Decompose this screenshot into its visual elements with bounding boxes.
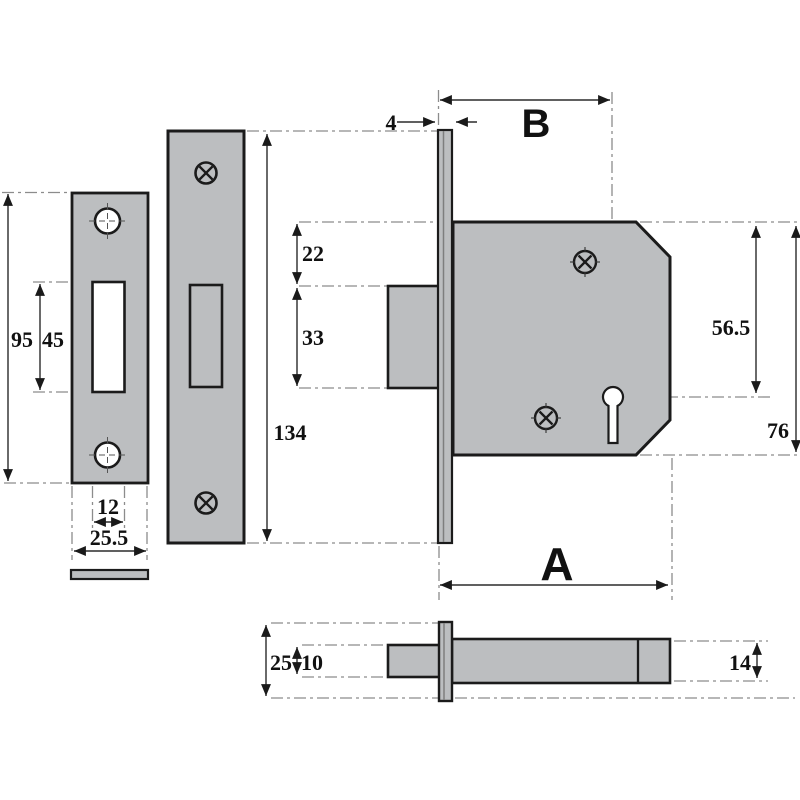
plan-view xyxy=(388,622,670,701)
dimension-33: 33 xyxy=(297,288,324,386)
dim-label-33: 33 xyxy=(302,325,324,350)
dim-label-25: 25 xyxy=(270,650,292,675)
dim-label-4: 4 xyxy=(386,110,397,135)
dimension-95: 95 xyxy=(8,194,33,481)
lock-case-body xyxy=(453,222,670,455)
lock-case-view xyxy=(388,130,670,543)
dim-label-76: 76 xyxy=(767,418,789,443)
dimension-12: 12 xyxy=(94,494,123,522)
dimension-134: 134 xyxy=(267,134,307,541)
faceplate-slot xyxy=(190,285,222,387)
dimension-B: B xyxy=(440,100,610,146)
diagram-stage: 95 45 12 25.5 134 4 B 22 33 56.5 76 xyxy=(0,0,800,800)
dim-label-45: 45 xyxy=(42,327,64,352)
strike-screw-hole-bottom xyxy=(95,443,120,468)
dim-label-134: 134 xyxy=(274,420,307,445)
dimension-22: 22 xyxy=(297,224,324,284)
lock-dimension-diagram: 95 45 12 25.5 134 4 B 22 33 56.5 76 xyxy=(0,0,800,800)
faceplate-view xyxy=(168,131,244,543)
dim-label-95: 95 xyxy=(11,327,33,352)
strike-plate-slot xyxy=(93,282,125,392)
dim-label-10: 10 xyxy=(301,650,323,675)
dim-label-56-5: 56.5 xyxy=(712,315,751,340)
dim-label-B: B xyxy=(522,102,551,146)
faceplate-edge-bar xyxy=(438,130,452,543)
dimension-56-5: 56.5 xyxy=(712,226,756,393)
dim-label-12: 12 xyxy=(97,494,119,519)
plan-bolt xyxy=(388,645,440,677)
dim-label-22: 22 xyxy=(302,241,324,266)
dimension-76: 76 xyxy=(767,226,796,452)
dimension-25: 25 xyxy=(266,625,292,696)
dimension-10: 10 xyxy=(297,647,323,675)
deadbolt xyxy=(388,286,440,388)
dim-label-25-5: 25.5 xyxy=(90,525,129,550)
dimension-A: A xyxy=(440,538,668,590)
dimension-45: 45 xyxy=(40,284,64,390)
dim-label-A: A xyxy=(540,538,573,590)
dimension-25-5: 25.5 xyxy=(74,525,146,551)
strike-screw-hole-top xyxy=(95,209,120,234)
plan-faceplate-bar xyxy=(439,622,452,701)
strike-plate-edge-view xyxy=(71,570,148,579)
dim-label-14: 14 xyxy=(729,650,751,675)
strike-plate-view xyxy=(71,193,148,579)
dimension-14: 14 xyxy=(729,643,757,678)
